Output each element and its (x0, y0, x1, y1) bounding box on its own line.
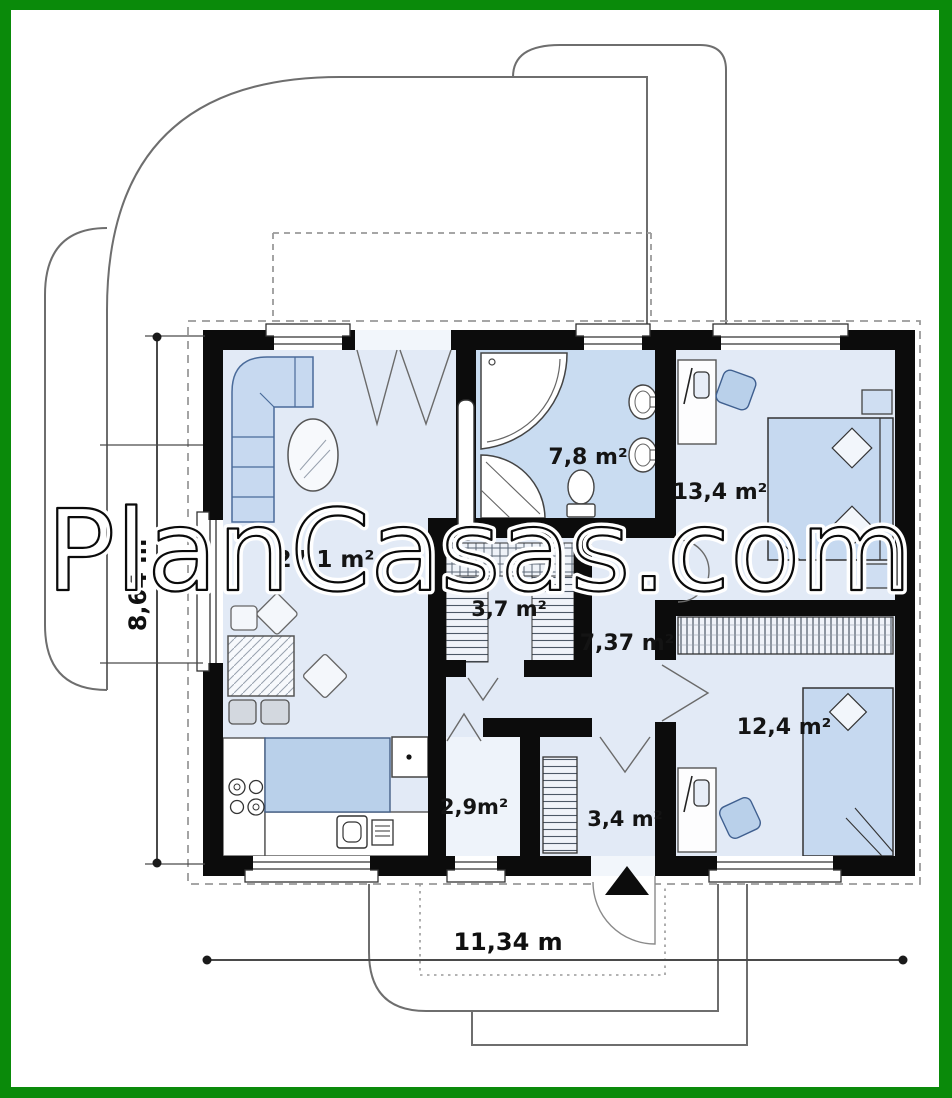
room-label-bedroom-bottom: 12,4 m² (737, 715, 832, 740)
room-label-bathroom: 7,8 m² (548, 445, 627, 470)
nightstand (862, 390, 892, 414)
oven-icon (337, 816, 367, 848)
sink-drainer-icon (372, 820, 393, 845)
watermark-text: PlanCasas.com (46, 487, 912, 617)
wall-wardrobe-bottom-a (446, 660, 466, 677)
entry-wardrobe (543, 757, 577, 853)
built-in-wardrobe (678, 617, 893, 654)
kitchen-worktop (265, 738, 390, 812)
frame-left (0, 0, 11, 1098)
wall-bedroom2-left-lower (655, 722, 676, 856)
frame-right (939, 0, 952, 1098)
window-bedroom-top (713, 324, 848, 350)
coffee-table (288, 419, 338, 491)
frame-top (0, 0, 952, 10)
wall-wc-top (483, 718, 592, 737)
wall-wardrobe-bottom-b (524, 660, 574, 677)
dimension-width-label: 11,34 m (453, 928, 562, 956)
frame-bottom (0, 1087, 952, 1098)
window-living-top (266, 324, 350, 350)
floor-plan-drawing: 11,34 m 8,64 m 27,1 m² 7,8 m² 13,4 m² 3,… (0, 0, 952, 1098)
terrace-door-opening (355, 330, 451, 350)
watermark: PlanCasas.com PlanCasas.com (46, 487, 912, 617)
room-label-hallway: 7,37 m² (580, 631, 675, 656)
fridge-dot (406, 754, 411, 759)
floor-plan-page: 11,34 m 8,64 m 27,1 m² 7,8 m² 13,4 m² 3,… (0, 0, 952, 1098)
bathroom-sink (629, 438, 657, 472)
dining-chair (229, 700, 256, 724)
bathroom-sink (629, 385, 657, 419)
desk-lamp-icon (694, 372, 709, 398)
window-bedroom-bottom (709, 856, 841, 882)
desk-lamp-icon (694, 780, 709, 806)
room-label-entry: 3,4 m² (587, 807, 663, 831)
window-kitchen (245, 856, 378, 882)
window-bathroom (576, 324, 650, 350)
wall-wc-entry (520, 737, 540, 857)
room-label-wc: 2,9m² (440, 795, 508, 819)
kitchen-counter (223, 738, 265, 856)
dining-table (228, 636, 294, 696)
window-wc (447, 856, 505, 882)
dining-chair (261, 700, 289, 724)
